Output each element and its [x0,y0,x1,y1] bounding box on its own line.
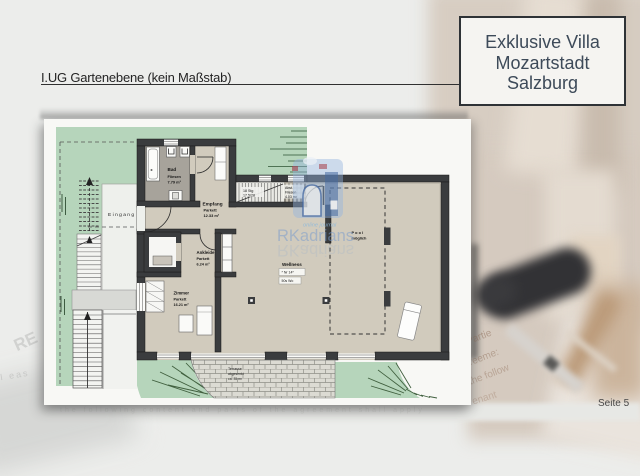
svg-text:Parkett: Parkett [197,257,211,261]
svg-text:* Nr 14*: * Nr 14* [282,271,295,275]
svg-text:50s Wo: 50s Wo [282,279,294,283]
svg-text:Wellness: Wellness [282,262,302,267]
svg-text:Eingang: Eingang [108,212,135,218]
svg-text:12.33 m²: 12.33 m² [204,213,220,218]
svg-text:ca. 35 m²: ca. 35 m² [228,377,243,381]
svg-text:17.5/28: 17.5/28 [243,194,255,198]
svg-text:Parkett: Parkett [204,208,218,213]
svg-text:Empfang: Empfang [203,202,223,207]
svg-text:Parkett: Parkett [174,297,188,301]
svg-text:Abst.: Abst. [285,186,293,190]
svg-text:Terrasse: Terrasse [228,367,242,371]
svg-text:abgesenkt: abgesenkt [228,372,244,376]
svg-text:Zimmer: Zimmer [174,291,190,296]
svg-text:Ankleide: Ankleide [197,250,216,255]
svg-text:Fliesen: Fliesen [168,174,182,179]
svg-text:16.21 m²: 16.21 m² [174,303,190,307]
svg-text:6.24 m²: 6.24 m² [197,262,211,266]
svg-text:7.79 m²: 7.79 m² [168,180,182,185]
svg-text:RKadrians: RKadrians [277,241,354,259]
svg-text:Bad: Bad [168,167,177,172]
svg-text:18 Stg: 18 Stg [243,189,253,193]
